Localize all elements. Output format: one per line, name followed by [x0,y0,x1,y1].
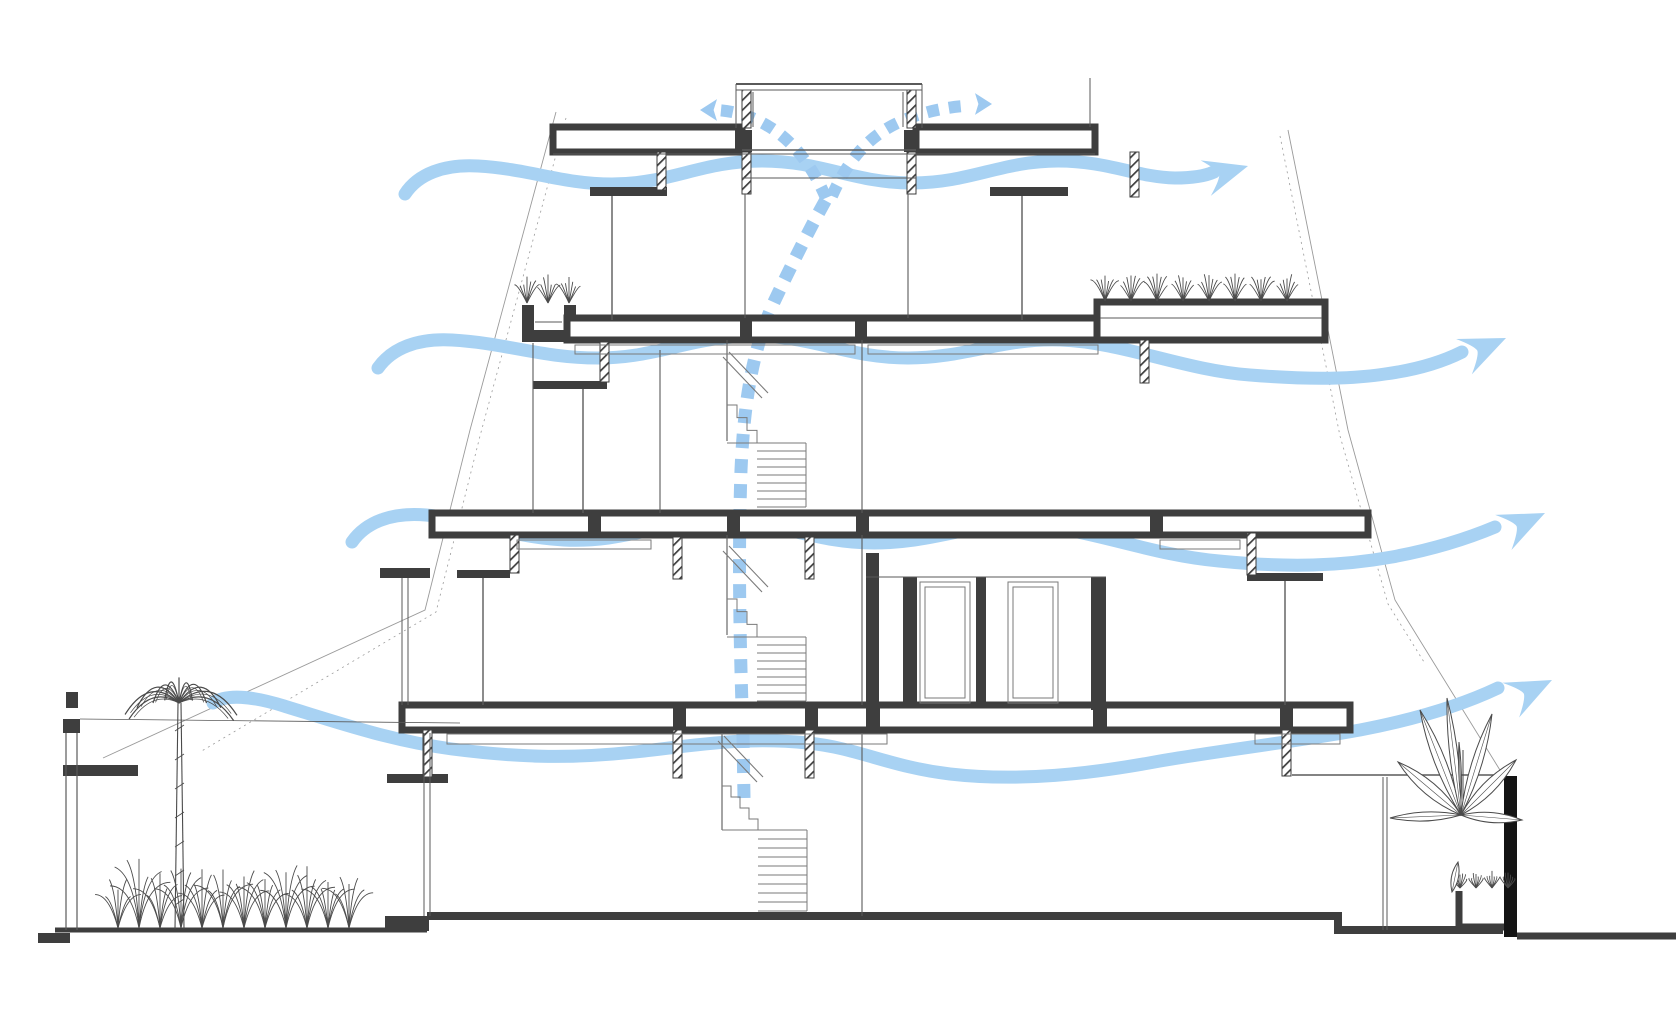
structure-block [1247,573,1323,581]
balcony-planter-plants [514,274,580,303]
structure-block [735,130,752,152]
structure-block [856,513,869,535]
hatched-column [907,152,916,194]
structure-block [38,933,70,943]
thin-frame [925,587,965,698]
airflow-layer [213,93,1560,798]
structure-block [976,577,986,707]
structure-block [63,719,80,733]
structure-block [990,187,1068,196]
sight-line [1280,136,1424,662]
structure-block [590,187,667,196]
hatched-column [805,537,814,579]
structure-block [1150,513,1163,535]
palm-trunk-ring [175,870,184,876]
banana-plant [1390,698,1522,892]
structure-block [805,705,818,730]
hatched-column [673,730,682,778]
structure-block [380,568,430,578]
structure-block [673,705,686,730]
palm-trunk-ring [175,725,184,731]
hatched-column [600,342,609,382]
hatched-column [1140,340,1149,383]
stair-flight-level-2 [723,352,806,507]
airflow-arrowhead-icon [1495,495,1553,549]
structure-block [1280,705,1293,730]
floor-slab-level-3 [567,318,1100,340]
shrub-row [95,859,373,928]
structure-block [457,570,510,578]
hatched-column [673,537,682,579]
hatched-column [907,90,916,128]
hatched-column [1130,152,1139,197]
roof-slab-right [916,127,1095,152]
palm-trunk-ring [175,754,184,760]
structure-block [66,692,78,708]
floor-slab-level-2 [432,513,1368,535]
thin-frame [1008,582,1058,703]
structure-block [533,381,607,389]
hatched-column [657,152,666,190]
green-roof-terrace-slab [1097,302,1325,340]
sight-line [103,112,556,758]
structure-block [1091,577,1106,710]
structure-block [855,318,867,340]
ventilation-section-diagram: Building cross-section - natural ventila… [0,0,1679,1020]
sight-line [1288,130,1503,775]
hatched-column [1247,533,1256,575]
section-drawing: Building cross-section - natural ventila… [0,0,1679,1020]
structure-block [1504,776,1517,937]
site-ground [55,305,1676,936]
hatched-column [742,90,751,128]
structure-block [904,130,918,152]
airflow-arrowhead-icon [1502,663,1560,718]
exhaust-arrowhead-icon [700,99,717,121]
building-section [38,78,1517,943]
hatched-column [805,730,814,778]
stair-flight-ground [718,736,807,911]
structure-block [63,765,138,776]
structure-block [866,705,880,730]
ground-line [427,916,1503,930]
structure-block [903,577,917,707]
structure-block [740,318,752,340]
green-roof-plants [1090,274,1298,301]
hatched-column [742,152,751,194]
structure-block [385,916,429,931]
roof-slab-left [553,127,742,152]
structure-block [727,513,740,535]
palm-trunk-ring [175,899,184,905]
hatched-column [1282,730,1291,776]
sight-line [200,118,566,752]
structure-block [866,553,879,707]
thin-frame [920,582,970,703]
hatched-column [510,535,519,573]
structure-block [588,513,601,535]
structure-block [387,774,448,783]
thin-frame [1013,587,1053,698]
exhaust-arrowhead-icon [975,93,992,115]
